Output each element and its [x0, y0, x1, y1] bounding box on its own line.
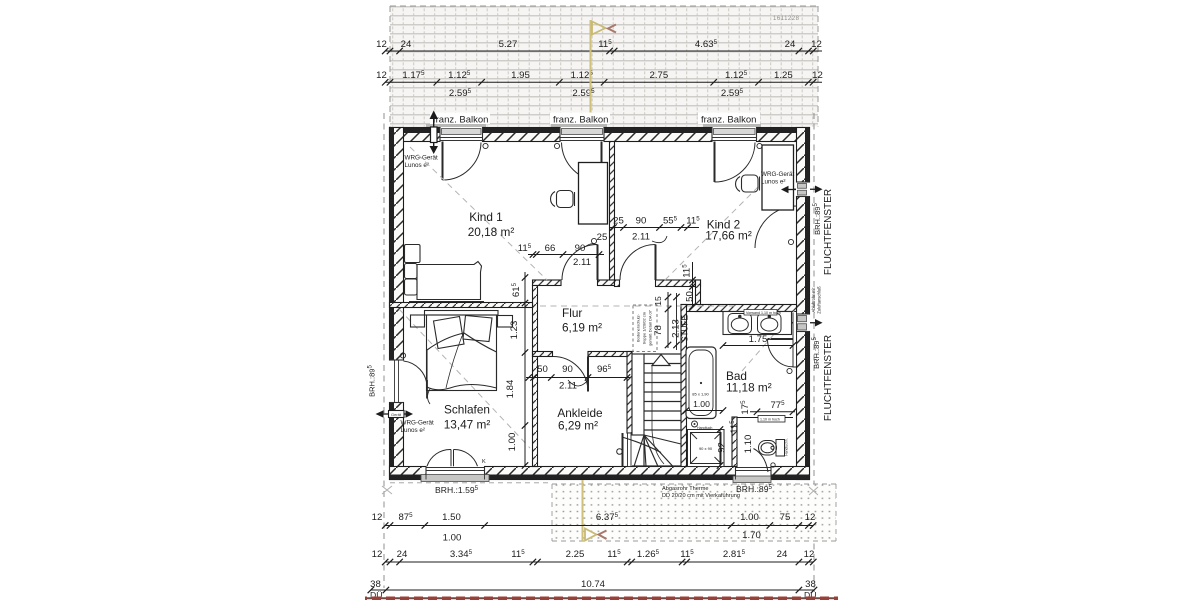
svg-text:5.27: 5.27 [499, 39, 518, 50]
svg-text:BRH.:1.595: BRH.:1.595 [435, 485, 479, 495]
svg-text:90: 90 [575, 243, 586, 254]
svg-text:90 x 90: 90 x 90 [699, 446, 713, 451]
svg-text:92: 92 [717, 442, 728, 453]
svg-text:75: 75 [780, 512, 791, 523]
svg-text:1.70: 1.70 [742, 530, 761, 541]
svg-text:24: 24 [401, 39, 412, 50]
svg-text:1.00: 1.00 [507, 433, 518, 452]
svg-text:FLUCHTFENSTER: FLUCHTFENSTER [823, 335, 834, 421]
svg-text:78: 78 [653, 325, 664, 336]
svg-text:2.75: 2.75 [650, 70, 669, 81]
svg-text:BRH.:895: BRH.:895 [812, 203, 822, 235]
svg-text:Schlafen: Schlafen [444, 403, 490, 417]
svg-text:BRH.:895: BRH.:895 [811, 337, 821, 369]
svg-text:1.95: 1.95 [511, 70, 530, 81]
svg-text:BRH.:895: BRH.:895 [366, 365, 376, 397]
svg-text:13,47 m²: 13,47 m² [444, 418, 491, 432]
svg-text:Lunos e²: Lunos e² [761, 179, 786, 186]
svg-text:Lunos e²: Lunos e² [401, 427, 426, 434]
svg-text:38: 38 [370, 579, 381, 590]
svg-text:12: 12 [804, 549, 815, 560]
svg-text:90: 90 [562, 364, 573, 375]
svg-text:2.11: 2.11 [632, 232, 650, 243]
svg-text:K: K [482, 459, 486, 465]
svg-text:Abluftrohr mit: Abluftrohr mit [811, 287, 816, 313]
svg-text:12: 12 [376, 70, 387, 81]
svg-text:2.11: 2.11 [559, 381, 577, 392]
svg-text:Gerät: Gerät [391, 412, 402, 417]
svg-text:Lunos e²: Lunos e² [405, 162, 430, 169]
svg-text:10.74: 10.74 [581, 579, 606, 590]
svg-text:Kind 1: Kind 1 [469, 210, 502, 224]
svg-text:12: 12 [372, 549, 383, 560]
svg-text:15: 15 [653, 296, 663, 306]
svg-text:25: 25 [597, 232, 608, 243]
svg-text:12: 12 [372, 512, 383, 523]
svg-text:1.75: 1.75 [749, 334, 768, 345]
svg-text:franz. Balkon: franz. Balkon [433, 115, 488, 126]
svg-text:17,66 m²: 17,66 m² [705, 229, 752, 243]
svg-text:1.25: 1.25 [774, 70, 793, 81]
svg-text:1.00: 1.00 [443, 533, 462, 544]
svg-text:Bodenerschutz-: Bodenerschutz- [636, 313, 641, 342]
svg-text:11,18 m²: 11,18 m² [726, 381, 772, 395]
svg-text:Flur: Flur [562, 306, 582, 320]
svg-text:50: 50 [537, 364, 548, 375]
svg-text:1.00: 1.00 [740, 512, 759, 523]
svg-text:2.11: 2.11 [573, 257, 591, 268]
svg-text:6,19 m²: 6,19 m² [562, 321, 602, 335]
svg-text:38: 38 [805, 579, 816, 590]
svg-text:franz. Balkon: franz. Balkon [553, 115, 608, 126]
svg-text:1,10 m hoch: 1,10 m hoch [760, 418, 780, 422]
svg-text:12: 12 [805, 512, 816, 523]
svg-text:1.00: 1.00 [693, 399, 710, 409]
svg-text:1.84: 1.84 [505, 379, 516, 398]
svg-text:Handtuch: Handtuch [697, 426, 712, 430]
svg-text:Zuluftanschluß: Zuluftanschluß [817, 286, 822, 314]
svg-text:1.23: 1.23 [509, 321, 520, 340]
svg-text:2.25: 2.25 [566, 549, 585, 560]
svg-text:franz. Balkon: franz. Balkon [701, 115, 756, 126]
svg-text:24: 24 [397, 549, 408, 560]
svg-text:WRG-Gerät: WRG-Gerät [761, 171, 794, 178]
svg-text:50: 50 [685, 291, 696, 302]
svg-text:12: 12 [811, 39, 822, 50]
svg-text:85 x 1,90: 85 x 1,90 [692, 392, 709, 397]
svg-text:12: 12 [376, 39, 387, 50]
svg-text:BRH.:895: BRH.:895 [736, 484, 772, 494]
svg-text:Handtuchh.: Handtuchh. [785, 438, 789, 455]
svg-text:1.10: 1.10 [743, 435, 754, 454]
svg-text:FLUCHTFENSTER: FLUCHTFENSTER [823, 189, 834, 275]
svg-text:WRG-Gerät: WRG-Gerät [401, 420, 434, 427]
svg-text:6,29 m²: 6,29 m² [558, 419, 598, 433]
svg-text:gemäß Detail DA 07: gemäß Detail DA 07 [648, 309, 653, 346]
svg-text:STUFE: STUFE [681, 315, 690, 342]
svg-text:20,18 m²: 20,18 m² [468, 225, 515, 239]
svg-text:12: 12 [812, 70, 823, 81]
svg-text:DD 20/20 cm mit Vierkaführung: DD 20/20 cm mit Vierkaführung [662, 493, 740, 499]
svg-text:66: 66 [545, 243, 556, 254]
svg-text:25: 25 [613, 216, 624, 227]
svg-text:1611228: 1611228 [773, 16, 800, 22]
svg-text:90: 90 [636, 216, 647, 227]
svg-text:Abgasrohr Therme: Abgasrohr Therme [662, 486, 709, 492]
svg-text:24: 24 [777, 549, 788, 560]
svg-text:Vorwand 1,10 m hoch: Vorwand 1,10 m hoch [746, 311, 781, 315]
svg-text:1.50: 1.50 [442, 512, 461, 523]
svg-text:treppe 1/20/02 cm: treppe 1/20/02 cm [642, 311, 647, 344]
svg-text:24: 24 [785, 39, 796, 50]
